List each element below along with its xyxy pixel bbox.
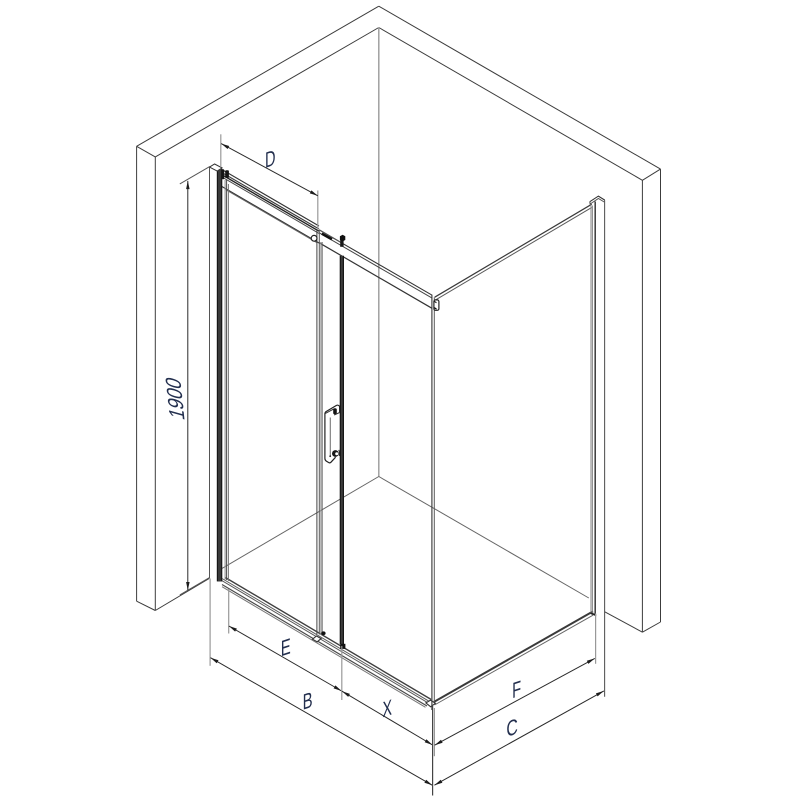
svg-text:C: C <box>506 714 518 742</box>
svg-text:X: X <box>382 695 392 722</box>
svg-text:E: E <box>281 634 291 662</box>
svg-text:D: D <box>265 145 276 173</box>
svg-text:F: F <box>512 676 521 703</box>
svg-text:1900: 1900 <box>160 374 189 422</box>
svg-text:B: B <box>303 687 313 715</box>
